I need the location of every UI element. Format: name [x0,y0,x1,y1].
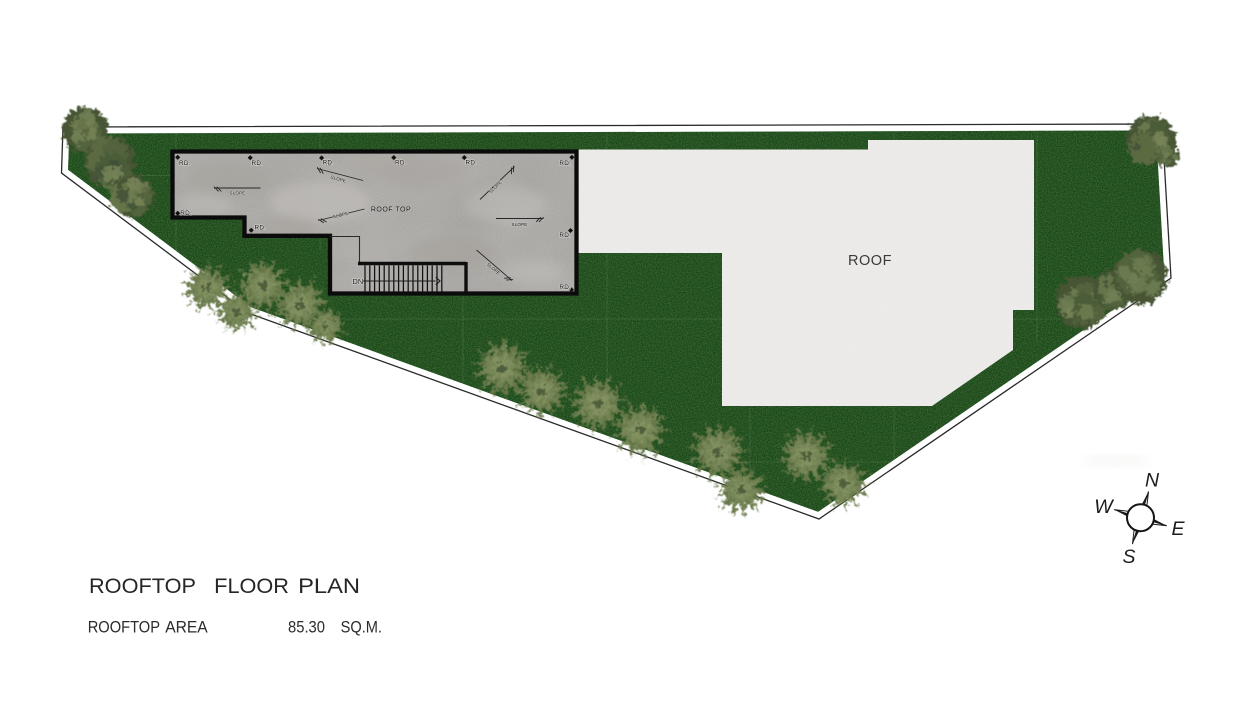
svg-text:RD.: RD. [180,210,192,217]
svg-text:ROOF: ROOF [848,253,892,269]
svg-text:SQ.M.: SQ.M. [341,618,382,637]
svg-text:E: E [1171,518,1185,540]
svg-text:SLOPE: SLOPE [511,222,527,227]
svg-text:DN: DN [353,277,364,286]
svg-text:ROOFTOP: ROOFTOP [88,618,160,637]
svg-text:RD.: RD. [466,159,478,166]
svg-text:AREA: AREA [165,618,208,637]
svg-text:W: W [1094,496,1114,518]
svg-text:RD.: RD. [559,160,571,167]
svg-text:85.30: 85.30 [288,618,325,637]
svg-text:FLOOR: FLOOR [214,574,289,598]
svg-text:RD.: RD. [179,160,191,167]
svg-text:RD.: RD. [252,160,264,167]
svg-text:ROOF TOP: ROOF TOP [371,207,411,214]
svg-text:RD.: RD. [255,225,267,232]
svg-text:RD.: RD. [323,159,335,166]
svg-text:PLAN: PLAN [298,574,360,598]
svg-text:RD.: RD. [395,159,407,166]
svg-text:N: N [1145,470,1160,492]
svg-text:RD.: RD. [559,232,571,239]
svg-text:RD.: RD. [559,284,571,291]
svg-text:S: S [1122,546,1135,568]
svg-text:ROOFTOP: ROOFTOP [89,574,196,598]
svg-text:SLOPE: SLOPE [229,191,245,196]
